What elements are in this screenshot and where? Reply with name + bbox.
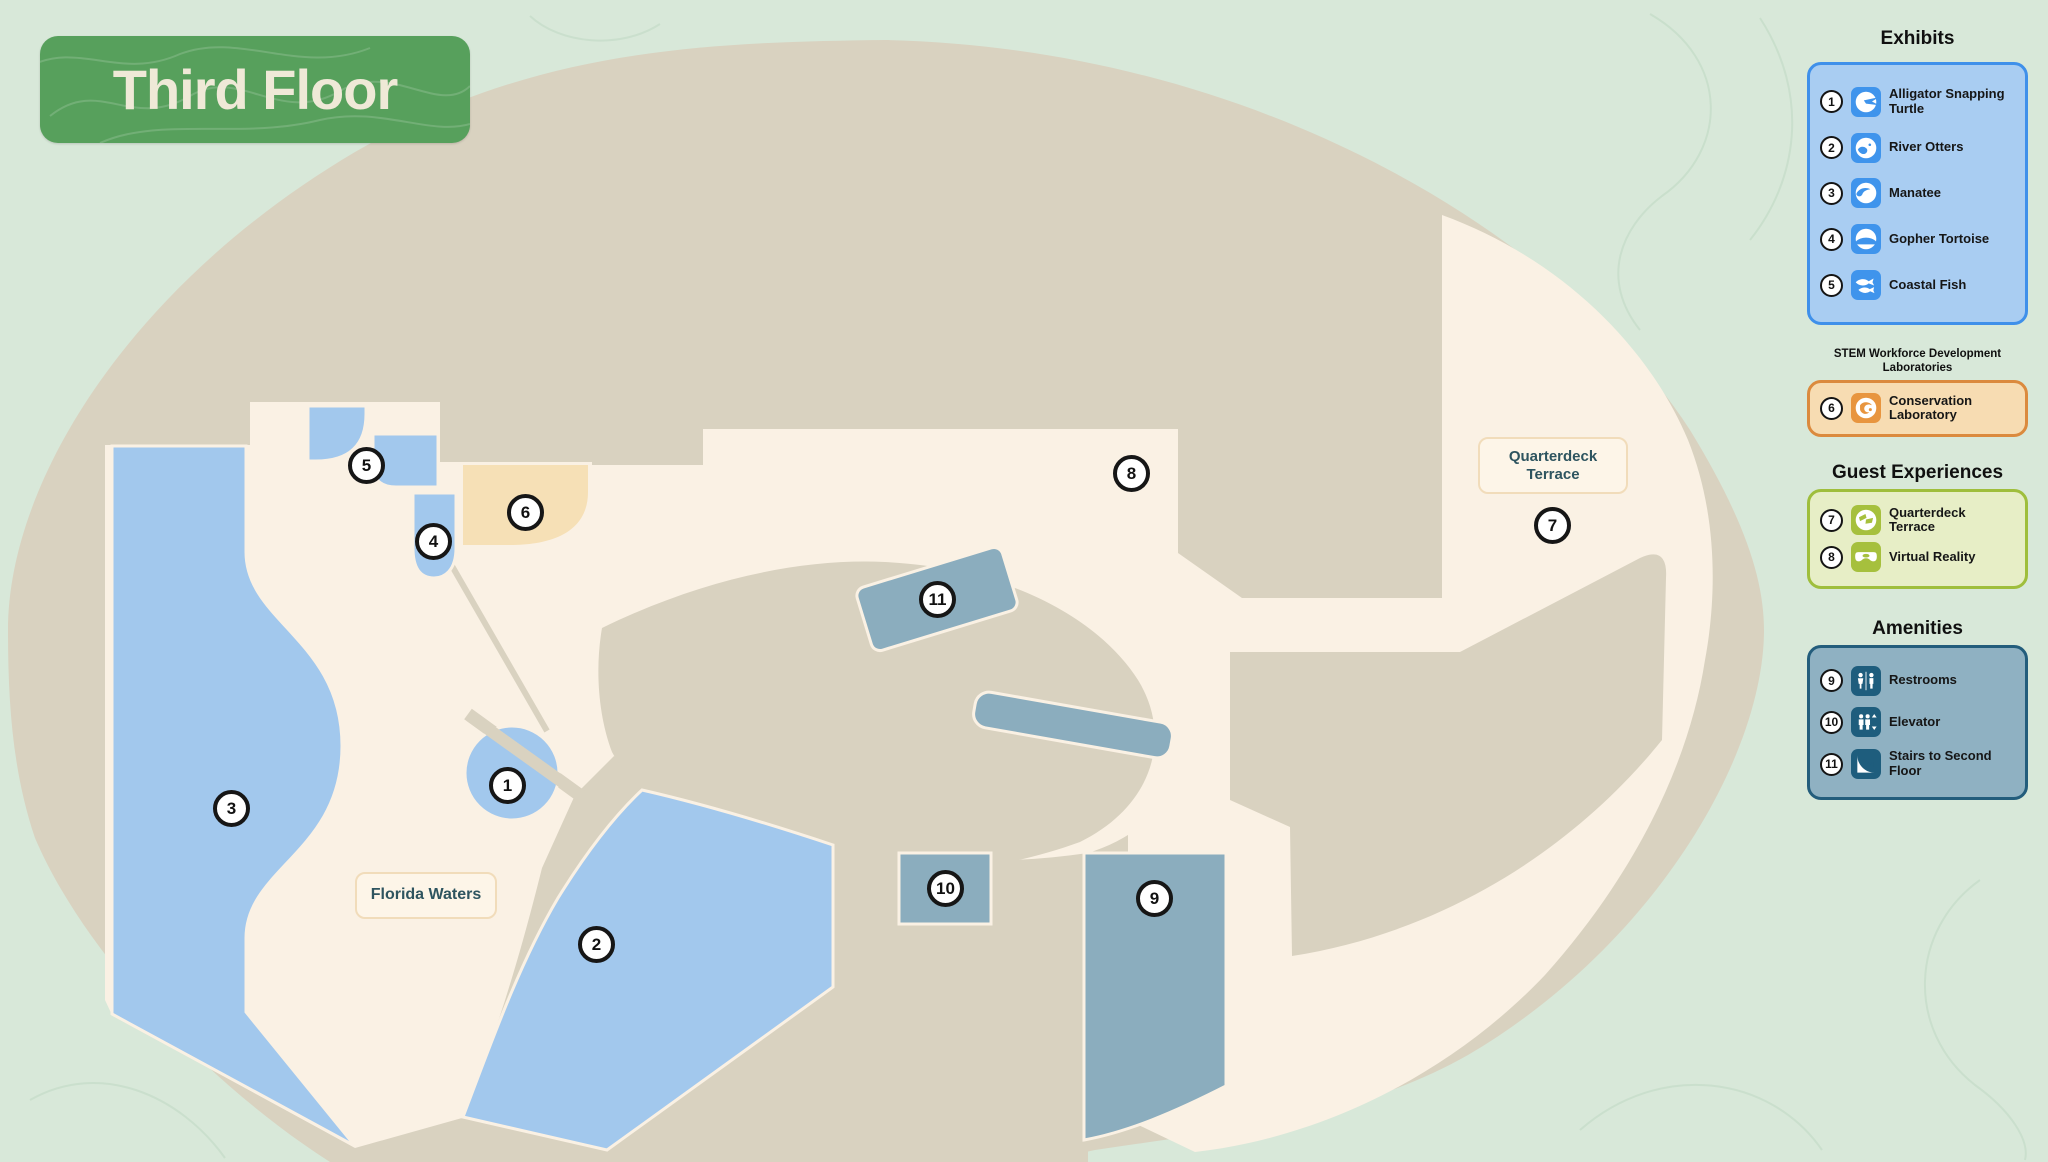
legend-number-badge: 5	[1820, 274, 1843, 297]
floor-map	[0, 0, 2048, 1162]
legend-number-badge: 6	[1820, 397, 1843, 420]
legend-item-label: River Otters	[1889, 140, 2011, 155]
stairs-to-second-floor-icon	[1851, 749, 1881, 779]
legend-item-label: Stairs to Second Floor	[1889, 749, 2011, 778]
legend-item-label: Virtual Reality	[1889, 550, 2011, 565]
marker-3-manatee[interactable]: 3	[213, 790, 250, 827]
legend-item-label: Alligator Snapping Turtle	[1889, 87, 2011, 116]
alligator-snapping-turtle-icon	[1851, 87, 1881, 117]
legend-item-alligator[interactable]: 1 Alligator Snapping Turtle	[1820, 87, 2025, 117]
florida-waters-label: Florida Waters	[355, 872, 497, 919]
legend-panel: Exhibits 1 Alligator Snapping Turtle 2 R…	[1807, 28, 2028, 800]
marker-6-lab[interactable]: 6	[507, 494, 544, 531]
gopher-tortoise-icon	[1851, 224, 1881, 254]
elevator-icon	[1851, 707, 1881, 737]
legend-number-badge: 2	[1820, 136, 1843, 159]
legend-item-label: Manatee	[1889, 186, 2011, 201]
legend-box-guest: 7 Quarterdeck Terrace 8 Virtual Reality	[1807, 489, 2028, 589]
legend-item-elevator[interactable]: 10 Elevator	[1820, 707, 2025, 737]
legend-item-coastal-fish[interactable]: 5 Coastal Fish	[1820, 270, 2025, 300]
marker-4-gopher[interactable]: 4	[415, 523, 452, 560]
coastal-fish-icon	[1851, 270, 1881, 300]
legend-section-title-amenities: Amenities	[1807, 618, 2028, 640]
marker-1-alligator[interactable]: 1	[489, 767, 526, 804]
marker-2-otters[interactable]: 2	[578, 926, 615, 963]
legend-item-otters[interactable]: 2 River Otters	[1820, 133, 2025, 163]
marker-11-stairs[interactable]: 11	[919, 581, 956, 618]
legend-box-exhibits: 1 Alligator Snapping Turtle 2 River Otte…	[1807, 62, 2028, 325]
legend-item-restrooms[interactable]: 9 Restrooms	[1820, 666, 2025, 696]
florida-waters-label-text: Florida Waters	[371, 886, 482, 904]
quarterdeck-terrace-icon	[1851, 505, 1881, 535]
marker-8-vr[interactable]: 8	[1113, 455, 1150, 492]
legend-number-badge: 11	[1820, 753, 1843, 776]
legend-item-virtual-reality[interactable]: 8 Virtual Reality	[1820, 542, 2025, 572]
marker-9-restrooms[interactable]: 9	[1136, 880, 1173, 917]
legend-item-stairs[interactable]: 11 Stairs to Second Floor	[1820, 749, 2025, 779]
quarterdeck-terrace-label-text: Quarterdeck Terrace	[1494, 448, 1612, 483]
legend-number-badge: 7	[1820, 509, 1843, 532]
legend-item-label: Quarterdeck Terrace	[1889, 506, 2011, 535]
legend-item-manatee[interactable]: 3 Manatee	[1820, 178, 2025, 208]
conservation-laboratory-icon	[1851, 393, 1881, 423]
legend-number-badge: 3	[1820, 182, 1843, 205]
legend-item-label: Restrooms	[1889, 673, 2011, 688]
legend-box-stem: 6 Conservation Laboratory	[1807, 380, 2028, 437]
marker-10-elevator[interactable]: 10	[927, 870, 964, 907]
quarterdeck-terrace-label: Quarterdeck Terrace	[1478, 437, 1628, 494]
restrooms-icon	[1851, 666, 1881, 696]
legend-item-label: Coastal Fish	[1889, 278, 2011, 293]
marker-7-terrace[interactable]: 7	[1534, 507, 1571, 544]
legend-item-label: Elevator	[1889, 715, 2011, 730]
floor-title-banner: Third Floor	[40, 36, 470, 143]
manatee-icon	[1851, 178, 1881, 208]
floor-title-text: Third Floor	[113, 57, 398, 122]
legend-item-label: Conservation Laboratory	[1889, 394, 2011, 423]
floor-map-page: Third Floor Florida Waters Quarterdeck T…	[0, 0, 2048, 1162]
legend-section-title-guest: Guest Experiences	[1807, 462, 2028, 484]
virtual-reality-icon	[1851, 542, 1881, 572]
legend-number-badge: 4	[1820, 228, 1843, 251]
legend-number-badge: 9	[1820, 669, 1843, 692]
legend-item-label: Gopher Tortoise	[1889, 232, 2011, 247]
river-otters-icon	[1851, 133, 1881, 163]
legend-number-badge: 8	[1820, 546, 1843, 569]
marker-5-coastal[interactable]: 5	[348, 447, 385, 484]
legend-section-title-exhibits: Exhibits	[1807, 28, 2028, 50]
legend-item-conservation-lab[interactable]: 6 Conservation Laboratory	[1820, 393, 2025, 423]
legend-number-badge: 1	[1820, 90, 1843, 113]
legend-item-quarterdeck-terrace[interactable]: 7 Quarterdeck Terrace	[1820, 505, 2025, 535]
legend-box-amenities: 9 Restrooms 10 Elevator 11 Stairs to Sec…	[1807, 645, 2028, 800]
legend-section-title-stem: STEM Workforce Development Laboratories	[1807, 347, 2028, 376]
legend-item-gopher-tortoise[interactable]: 4 Gopher Tortoise	[1820, 224, 2025, 254]
legend-number-badge: 10	[1820, 711, 1843, 734]
